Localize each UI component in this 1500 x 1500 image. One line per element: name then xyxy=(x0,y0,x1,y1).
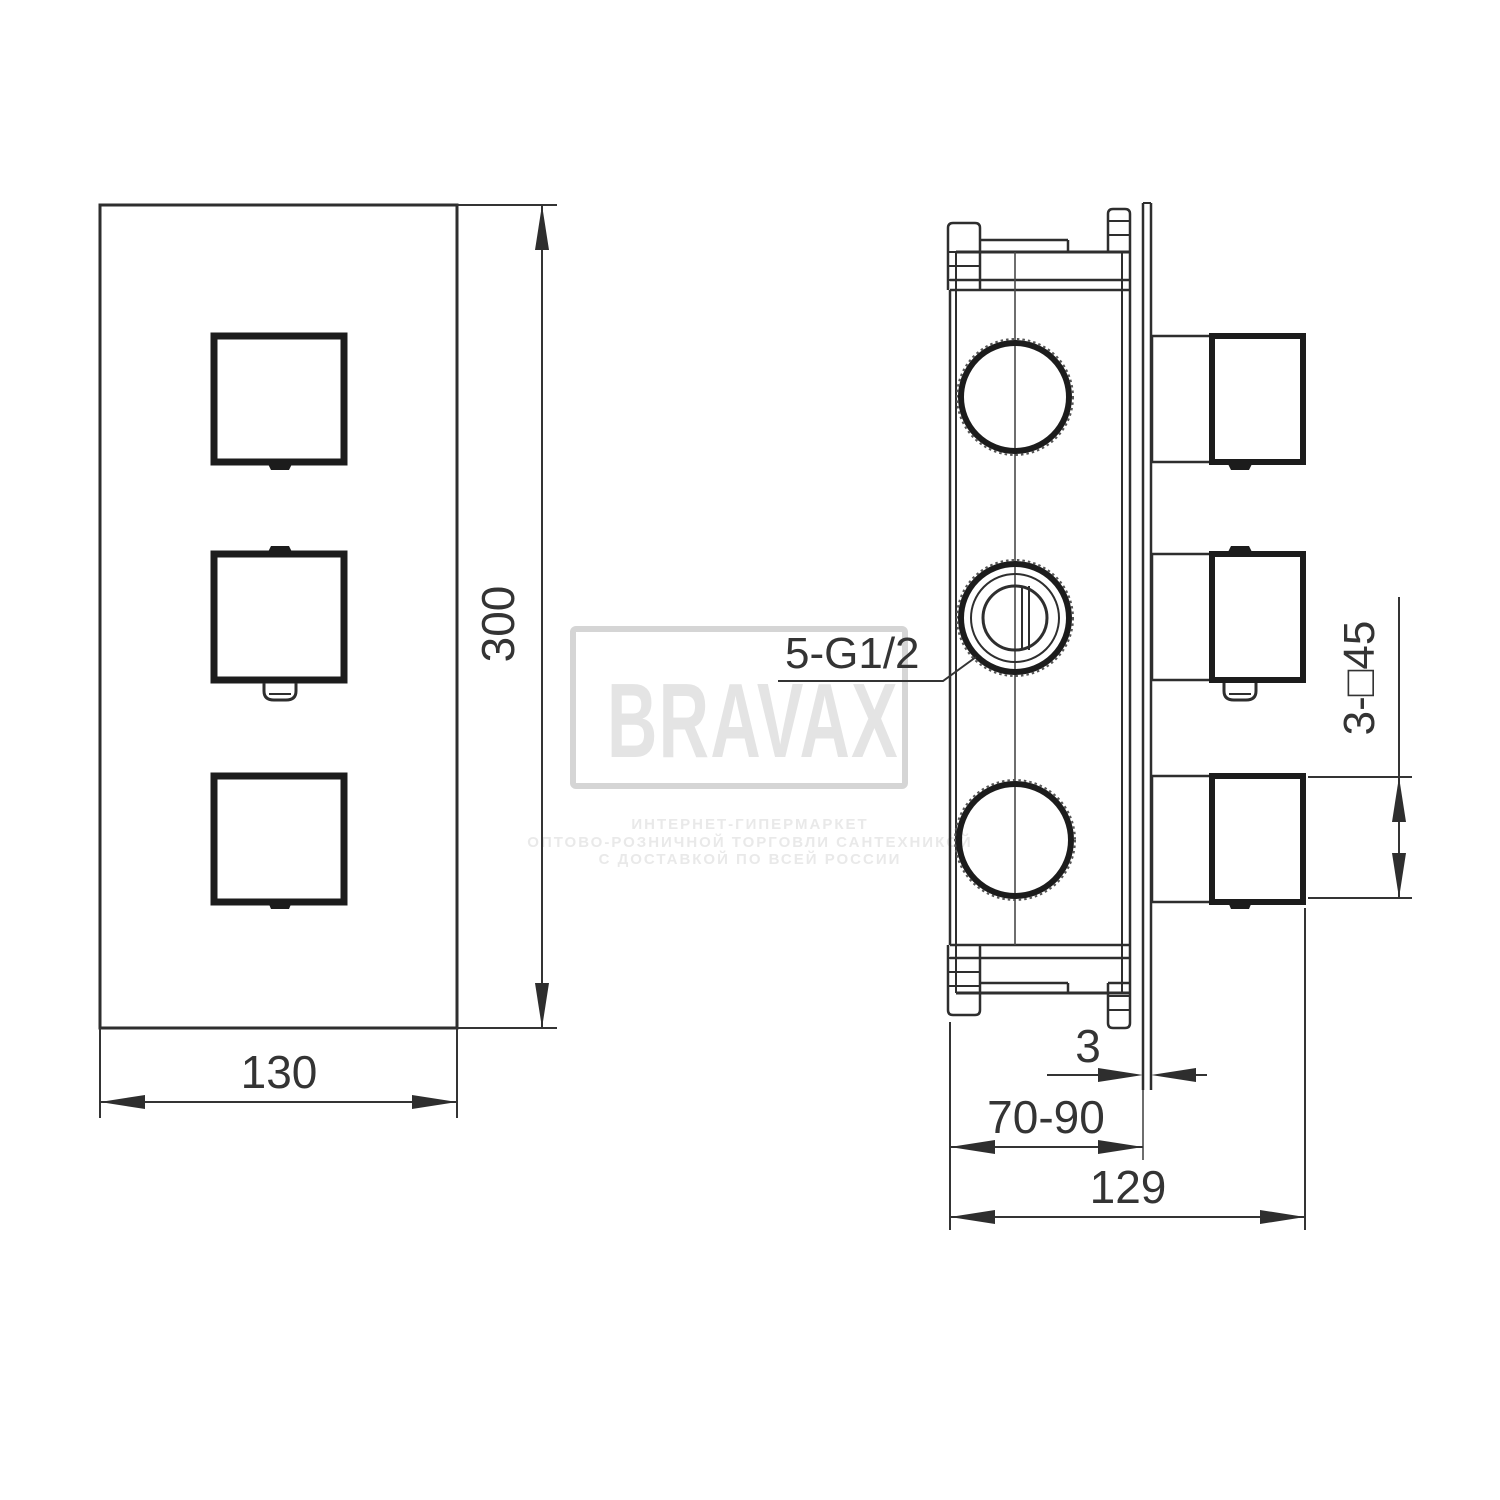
dim-label-ports: 5-G1/2 xyxy=(785,629,920,678)
dim-front-width: 130 xyxy=(100,1028,457,1118)
dim-label-knob-size: 3-□45 xyxy=(1335,621,1384,736)
watermark-brand-text: BRAVAX xyxy=(607,662,899,780)
handle-middle-top-tab xyxy=(267,546,293,554)
technical-drawing: BRAVAX ИНТЕРНЕТ-ГИПЕРМАРКЕТ ОПТОВО-РОЗНИ… xyxy=(0,0,1500,1500)
watermark-tagline-1: ИНТЕРНЕТ-ГИПЕРМАРКЕТ xyxy=(631,816,868,833)
knob-bottom xyxy=(1152,776,1303,909)
handle-square-top xyxy=(214,336,344,470)
dim-plate-thickness: 3 xyxy=(1047,1020,1207,1082)
knob-top xyxy=(1152,336,1303,470)
dim-label-mounting-depth: 70-90 xyxy=(987,1091,1105,1143)
arrowhead-left xyxy=(950,1210,995,1224)
arrowhead-down xyxy=(535,983,549,1028)
dim-ports-thread: 5-G1/2 xyxy=(778,629,976,681)
dim-knob-size: 3-□45 xyxy=(1308,597,1412,898)
arrowhead-down xyxy=(1392,853,1406,898)
technical-drawing-page: BRAVAX ИНТЕРНЕТ-ГИПЕРМАРКЕТ ОПТОВО-РОЗНИ… xyxy=(0,0,1500,1500)
dim-label-plate-thickness: 3 xyxy=(1075,1020,1101,1072)
knob-top-bottom-tab xyxy=(1227,462,1253,470)
lug-top-right xyxy=(1108,209,1130,252)
lug-bottom-left xyxy=(948,945,980,1015)
arrowhead-left xyxy=(1151,1068,1196,1082)
arrowhead-up xyxy=(1392,777,1406,822)
arrowhead-left xyxy=(100,1095,145,1109)
watermark-tagline-3: С ДОСТАВКОЙ ПО ВСЕЙ РОССИИ xyxy=(599,850,902,868)
handle-bottom-bottom-tab xyxy=(268,902,292,909)
handle-top-bottom-tab xyxy=(267,462,293,470)
handle-square-bottom xyxy=(214,776,344,909)
knob-middle xyxy=(1152,546,1303,700)
arrowhead-right xyxy=(1098,1068,1143,1082)
knob-middle-top-tab xyxy=(1227,546,1253,554)
wall-plate xyxy=(1143,203,1151,1160)
mounting-lugs xyxy=(948,209,1130,1028)
arrowhead-right xyxy=(412,1095,457,1109)
dim-label-overall-depth: 129 xyxy=(1090,1161,1167,1213)
dim-overall-depth: 129 xyxy=(950,908,1305,1230)
dim-front-height: 300 xyxy=(457,205,557,1028)
handle-square-middle xyxy=(214,546,344,700)
knob-middle-bottom-tab xyxy=(1224,683,1256,700)
handle-middle-bottom-tab xyxy=(264,683,296,700)
watermark-tagline-2: ОПТОВО-РОЗНИЧНОЙ ТОРГОВЛИ САНТЕХНИКОЙ xyxy=(527,833,972,851)
arrowhead-up xyxy=(535,205,549,250)
dim-label-width: 130 xyxy=(241,1046,318,1098)
dim-label-height: 300 xyxy=(472,586,524,663)
knob-bottom-bottom-tab xyxy=(1228,902,1252,909)
front-view: 300 130 xyxy=(100,205,557,1118)
arrowhead-right xyxy=(1260,1210,1305,1224)
lug-bottom-right xyxy=(1108,983,1130,1028)
